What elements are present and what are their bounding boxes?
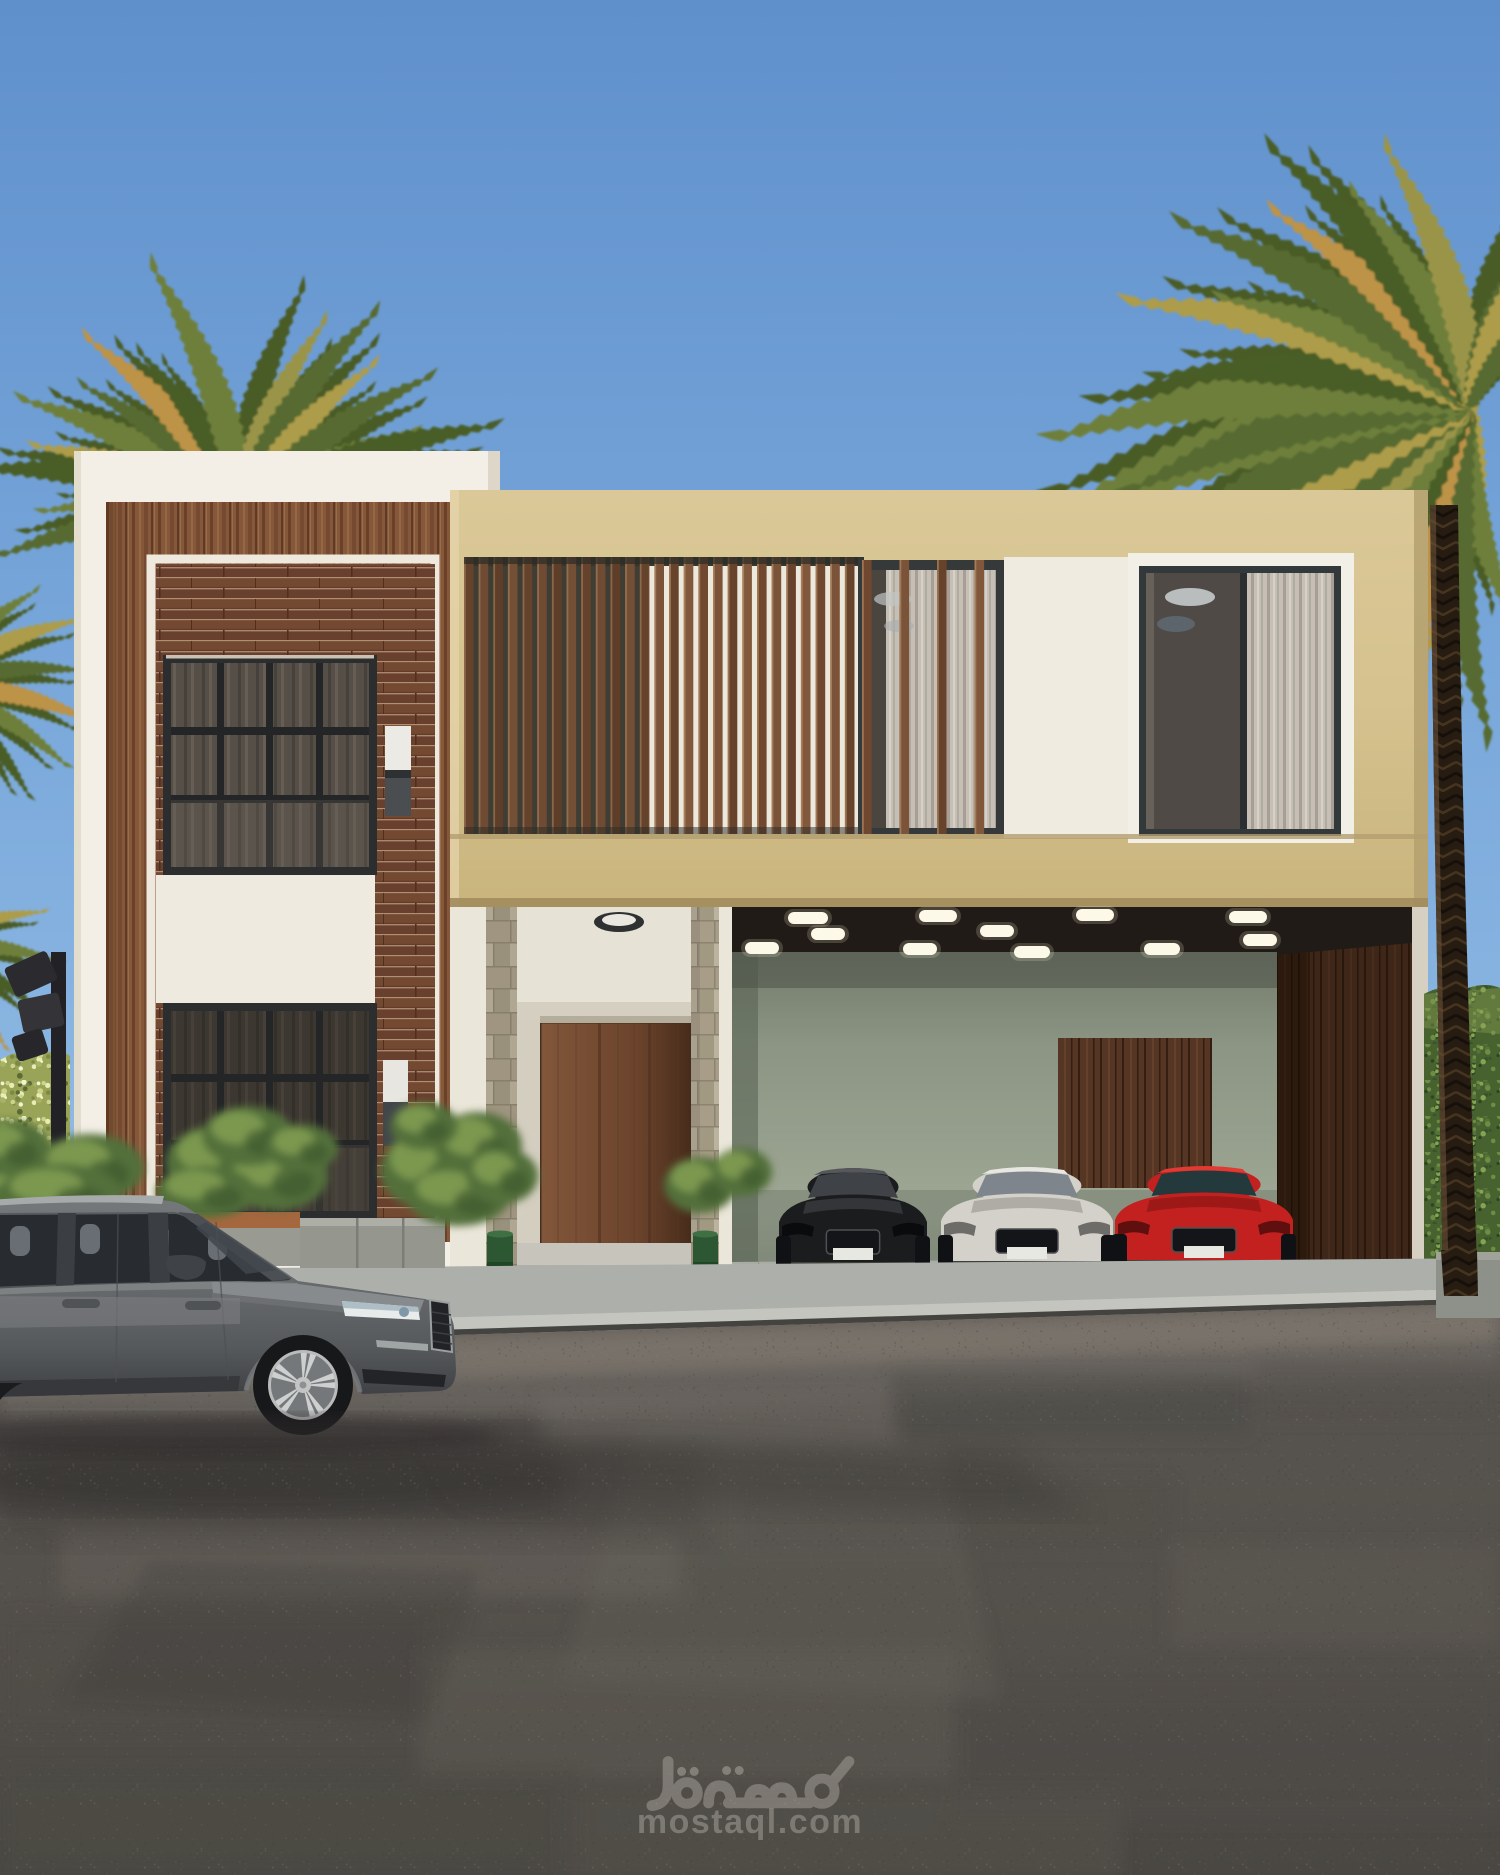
svg-text:mostaql.com: mostaql.com (637, 1803, 863, 1841)
